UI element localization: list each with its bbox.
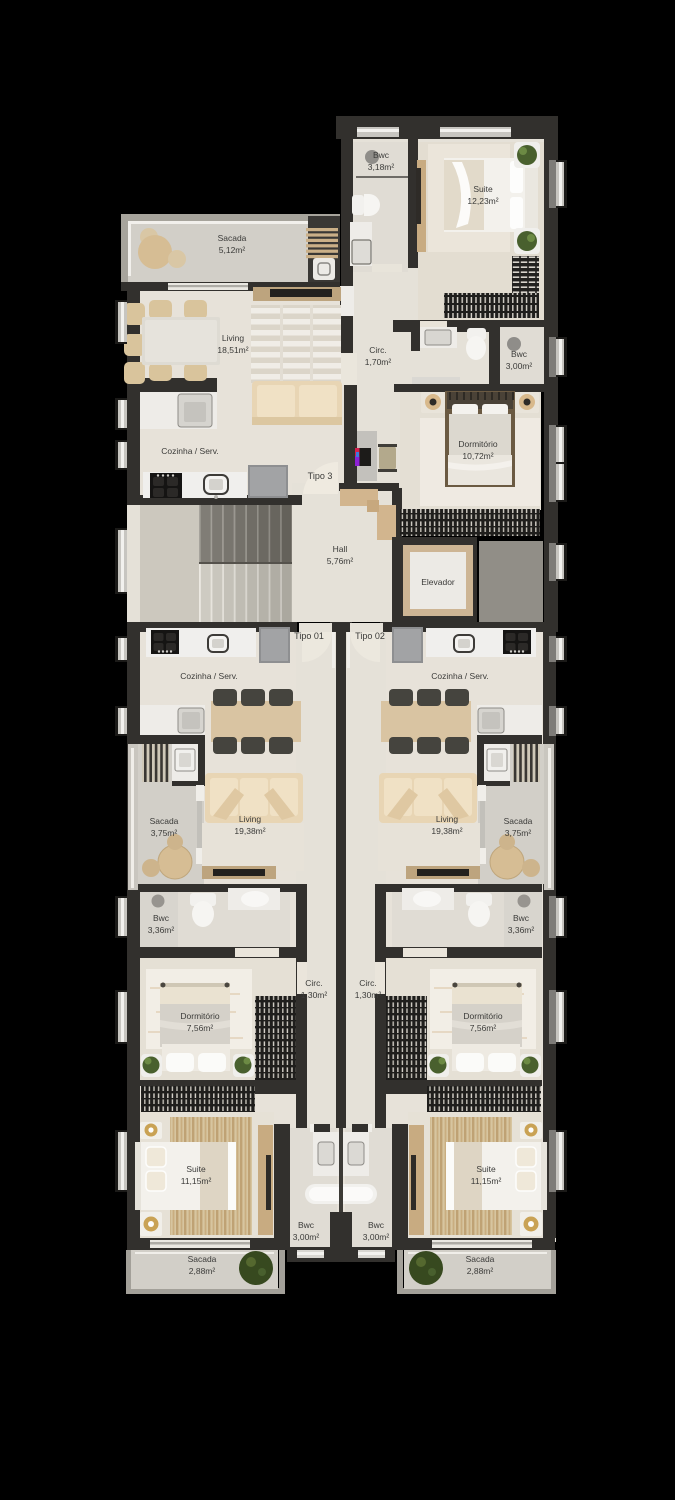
svg-text:1,30m²: 1,30m² [355, 990, 382, 1000]
svg-text:11,15m²: 11,15m² [181, 1176, 212, 1186]
svg-text:7,56m²: 7,56m² [187, 1023, 214, 1033]
svg-text:3,75m²: 3,75m² [505, 828, 532, 838]
svg-text:5,76m²: 5,76m² [327, 556, 354, 566]
svg-text:Suite: Suite [476, 1164, 496, 1174]
svg-text:Sacada: Sacada [188, 1254, 217, 1264]
svg-text:1,30m²: 1,30m² [301, 990, 328, 1000]
svg-text:Tipo 02: Tipo 02 [355, 631, 385, 641]
svg-text:11,15m²: 11,15m² [471, 1176, 502, 1186]
svg-text:Bwc: Bwc [511, 349, 528, 359]
svg-text:10,72m²: 10,72m² [462, 451, 493, 461]
svg-text:Circ.: Circ. [359, 978, 376, 988]
svg-text:2,88m²: 2,88m² [467, 1266, 494, 1276]
svg-text:Dormitório: Dormitório [180, 1011, 219, 1021]
svg-text:Sacada: Sacada [504, 816, 533, 826]
svg-text:Circ.: Circ. [369, 345, 386, 355]
svg-text:Sacada: Sacada [150, 816, 179, 826]
svg-text:5,12m²: 5,12m² [219, 245, 246, 255]
svg-text:Dormitório: Dormitório [463, 1011, 502, 1021]
svg-text:Bwc: Bwc [513, 913, 530, 923]
svg-text:18,51m²: 18,51m² [217, 345, 248, 355]
svg-text:Suite: Suite [186, 1164, 206, 1174]
svg-text:12,23m²: 12,23m² [467, 196, 498, 206]
svg-text:19,38m²: 19,38m² [431, 826, 462, 836]
svg-text:Living: Living [436, 814, 458, 824]
svg-text:3,18m²: 3,18m² [368, 162, 395, 172]
svg-text:19,38m²: 19,38m² [234, 826, 265, 836]
svg-text:Sacada: Sacada [466, 1254, 495, 1264]
svg-text:3,00m²: 3,00m² [506, 361, 533, 371]
svg-text:Cozinha / Serv.: Cozinha / Serv. [431, 671, 488, 681]
svg-text:3,00m²: 3,00m² [293, 1232, 320, 1242]
svg-text:2,88m²: 2,88m² [189, 1266, 216, 1276]
svg-text:Cozinha / Serv.: Cozinha / Serv. [180, 671, 237, 681]
svg-text:Bwc: Bwc [153, 913, 170, 923]
svg-text:Living: Living [222, 333, 244, 343]
svg-text:Tipo 3: Tipo 3 [308, 471, 333, 481]
svg-text:3,75m²: 3,75m² [151, 828, 178, 838]
svg-text:7,56m²: 7,56m² [470, 1023, 497, 1033]
svg-text:Circ.: Circ. [305, 978, 322, 988]
svg-text:Dormitório: Dormitório [458, 439, 497, 449]
svg-text:Elevador: Elevador [421, 577, 455, 587]
svg-text:3,36m²: 3,36m² [508, 925, 535, 935]
svg-text:Suite: Suite [473, 184, 493, 194]
svg-text:3,36m²: 3,36m² [148, 925, 175, 935]
svg-text:1,70m²: 1,70m² [365, 357, 392, 367]
svg-text:Bwc: Bwc [368, 1220, 385, 1230]
svg-text:Bwc: Bwc [298, 1220, 315, 1230]
svg-text:Hall: Hall [333, 544, 348, 554]
svg-text:Cozinha / Serv.: Cozinha / Serv. [161, 446, 218, 456]
svg-text:3,00m²: 3,00m² [363, 1232, 390, 1242]
svg-text:Sacada: Sacada [218, 233, 247, 243]
svg-text:Living: Living [239, 814, 261, 824]
svg-text:Bwc: Bwc [373, 150, 390, 160]
svg-text:Tipo 01: Tipo 01 [294, 631, 324, 641]
